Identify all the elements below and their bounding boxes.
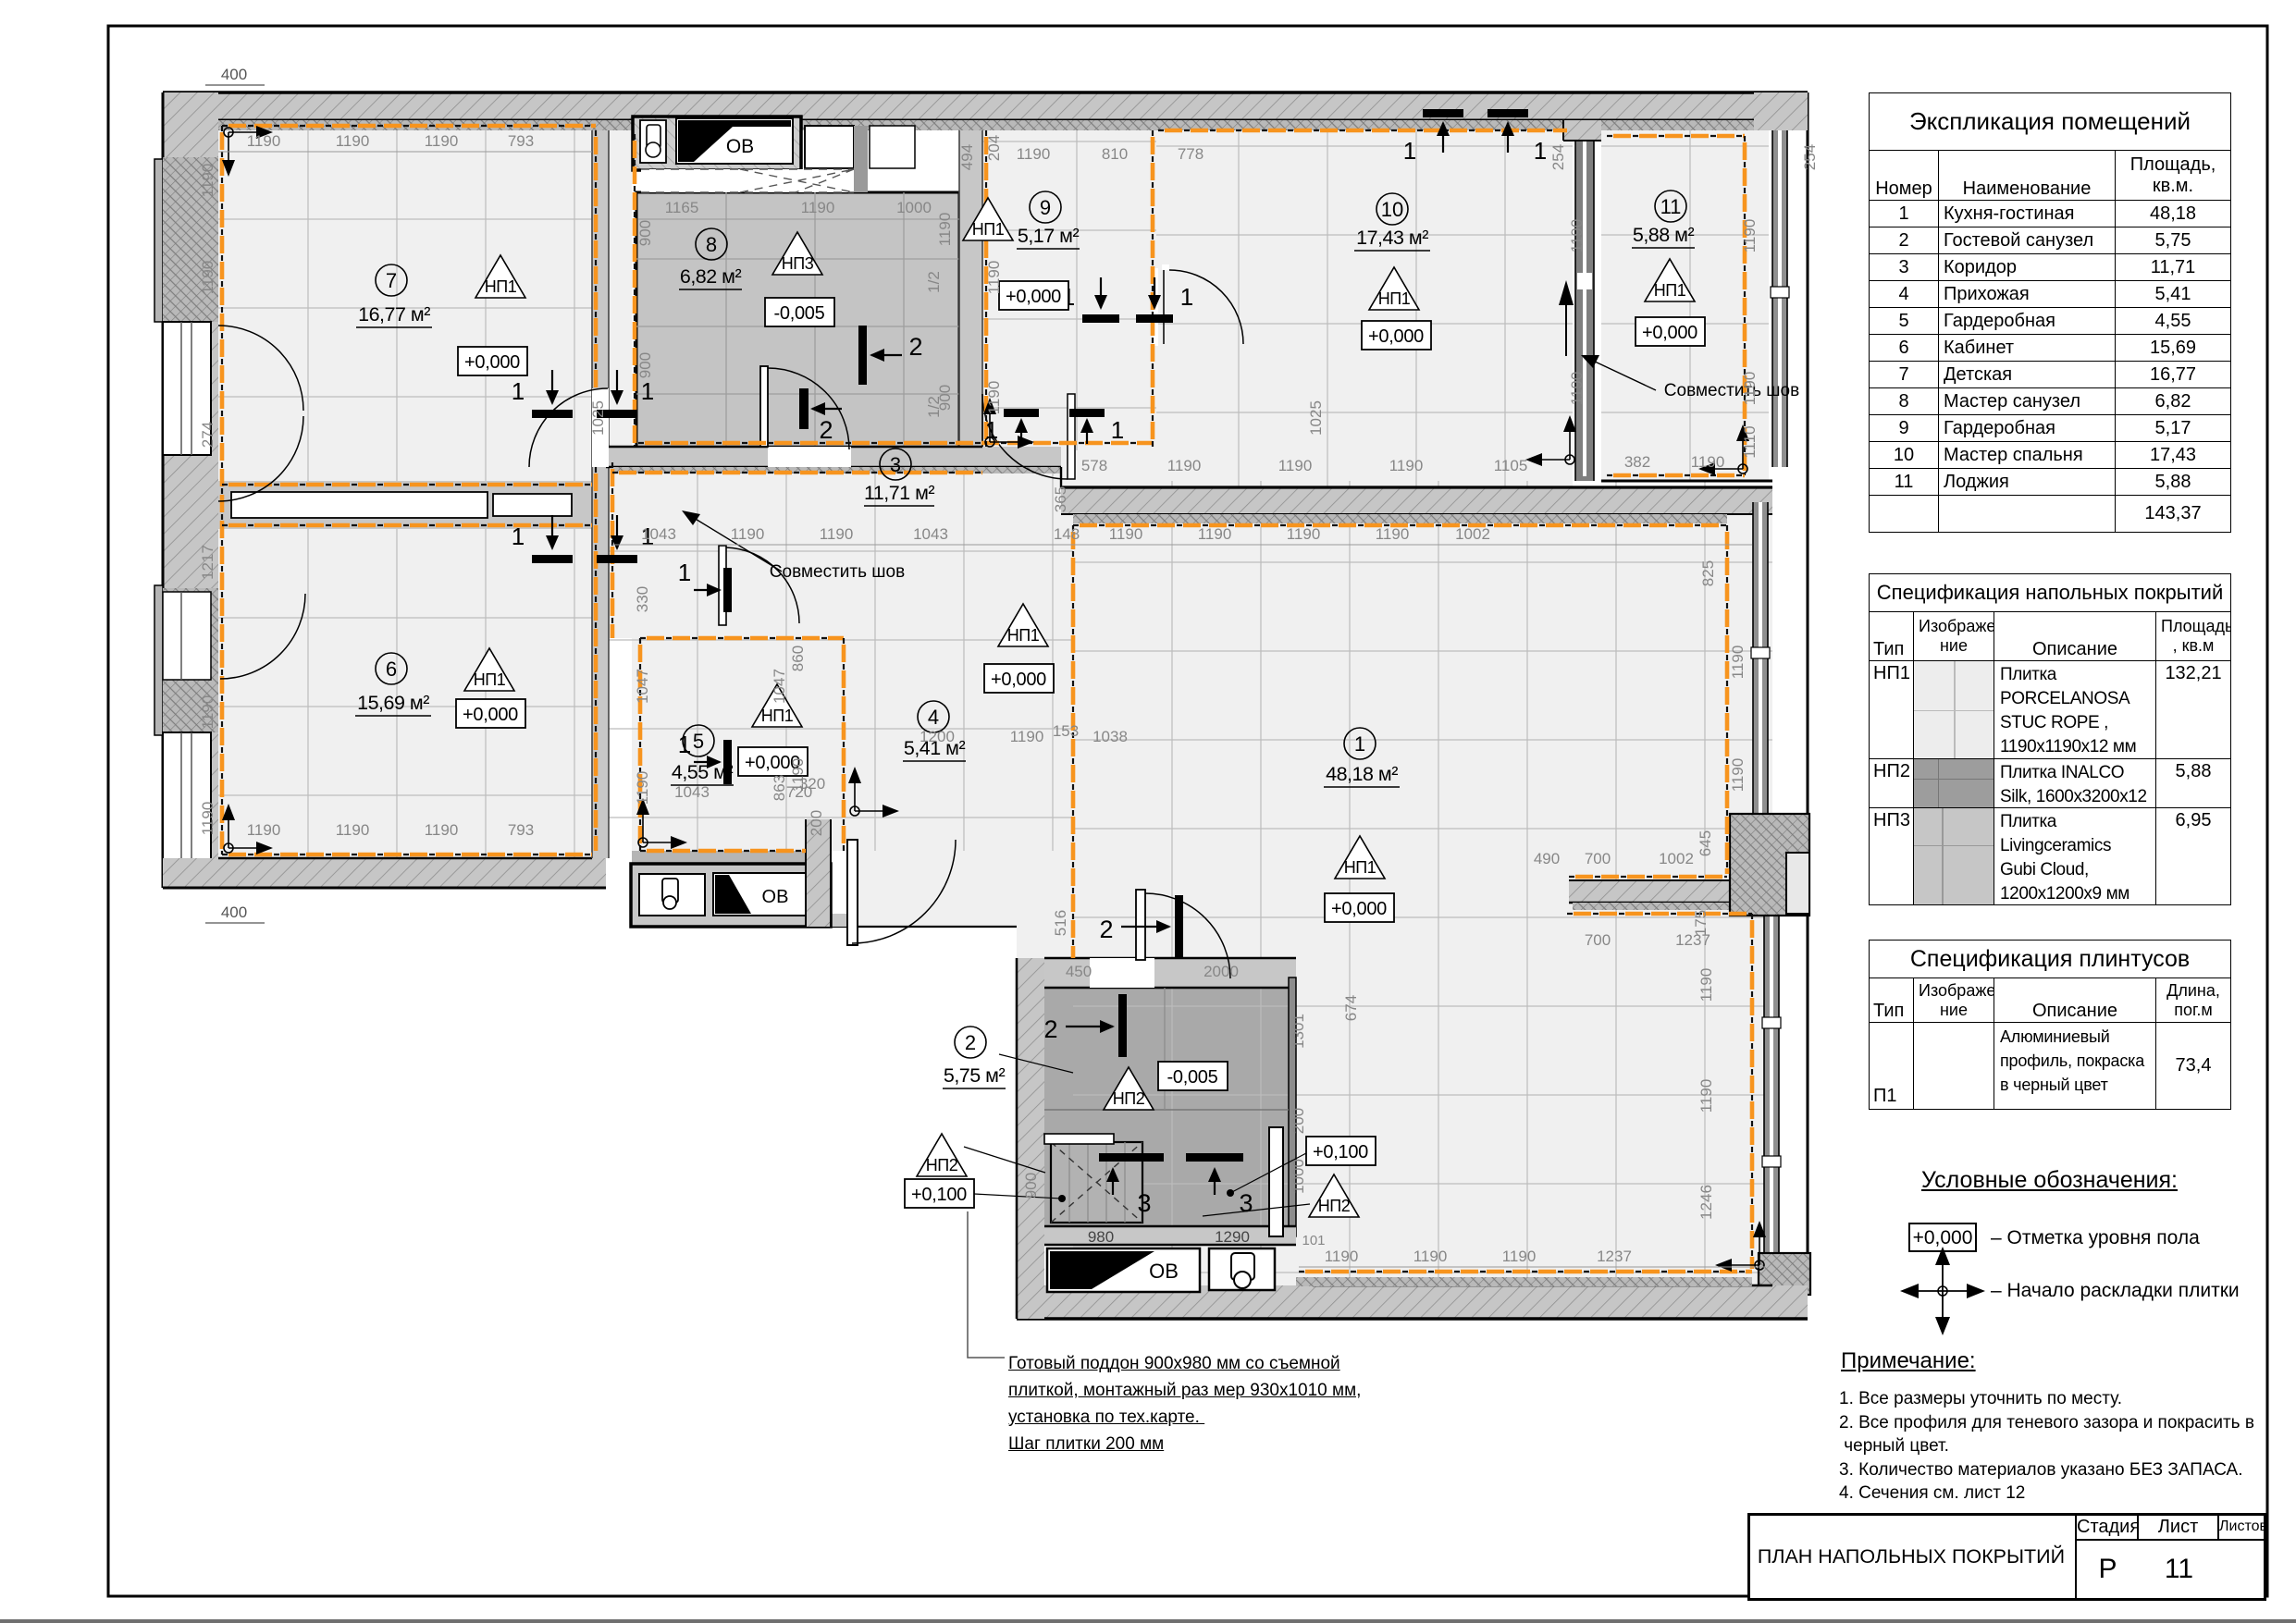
- svg-text:+0,000: +0,000: [1642, 323, 1697, 343]
- svg-text:1043: 1043: [641, 525, 676, 543]
- svg-text:НП1: НП1: [972, 220, 1005, 239]
- svg-text:175: 175: [1692, 910, 1710, 936]
- svg-text:1190: 1190: [1389, 457, 1424, 474]
- svg-text:1190: 1190: [1198, 525, 1232, 543]
- svg-text:1/2: 1/2: [925, 271, 943, 293]
- svg-text:274: 274: [199, 422, 216, 448]
- svg-text:1190: 1190: [1010, 728, 1044, 745]
- svg-text:1190: 1190: [1017, 145, 1051, 163]
- svg-text:1190: 1190: [425, 132, 459, 150]
- svg-text:1190: 1190: [1325, 1248, 1359, 1265]
- svg-text:1000: 1000: [896, 199, 932, 216]
- svg-text:+0,000: +0,000: [991, 670, 1046, 690]
- svg-text:1190: 1190: [199, 802, 216, 836]
- svg-text:148: 148: [1054, 525, 1080, 543]
- svg-text:5,75 м²: 5,75 м²: [944, 1064, 1006, 1087]
- svg-text:ОВ: ОВ: [762, 887, 789, 907]
- svg-text:793: 793: [508, 821, 534, 839]
- svg-text:490: 490: [1534, 850, 1560, 867]
- svg-text:+0,100: +0,100: [1313, 1142, 1368, 1162]
- svg-text:1190: 1190: [1502, 1248, 1537, 1265]
- svg-text:645: 645: [1697, 830, 1714, 856]
- svg-text:НП2: НП2: [1113, 1089, 1145, 1108]
- svg-text:НП1: НП1: [1344, 858, 1376, 877]
- svg-text:11: 11: [1660, 195, 1682, 218]
- svg-text:4: 4: [928, 706, 939, 729]
- svg-text:5,88 м²: 5,88 м²: [1633, 224, 1695, 246]
- svg-text:450: 450: [1066, 963, 1092, 980]
- svg-text:494: 494: [958, 144, 976, 170]
- svg-text:1047: 1047: [771, 669, 788, 704]
- svg-text:15,69 м²: 15,69 м²: [357, 692, 429, 714]
- svg-text:ОВ: ОВ: [1149, 1260, 1179, 1283]
- svg-text:101: 101: [1302, 1233, 1325, 1248]
- svg-text:1190: 1190: [1697, 1079, 1715, 1113]
- svg-text:Совместить шов: Совместить шов: [770, 562, 905, 582]
- svg-text:3: 3: [1239, 1189, 1253, 1217]
- svg-text:1190: 1190: [731, 525, 765, 543]
- svg-text:254: 254: [1549, 144, 1567, 170]
- svg-text:-0,005: -0,005: [774, 303, 825, 324]
- svg-text:254: 254: [1801, 144, 1819, 170]
- svg-text:1190: 1190: [801, 199, 835, 216]
- svg-text:НП1: НП1: [761, 707, 794, 725]
- svg-text:516: 516: [1052, 910, 1069, 936]
- svg-text:1: 1: [1534, 137, 1547, 165]
- svg-text:578: 578: [1081, 457, 1107, 474]
- svg-text:1: 1: [512, 377, 525, 405]
- svg-text:НП1: НП1: [1654, 281, 1686, 300]
- svg-text:10: 10: [1381, 198, 1403, 221]
- svg-text:1110: 1110: [1741, 425, 1759, 458]
- svg-text:5,17 м²: 5,17 м²: [1018, 225, 1080, 247]
- svg-text:1190: 1190: [1167, 457, 1202, 474]
- svg-text:1: 1: [1111, 416, 1124, 444]
- svg-text:3: 3: [1137, 1189, 1151, 1217]
- svg-text:2000: 2000: [1204, 963, 1239, 980]
- svg-text:825: 825: [1699, 560, 1717, 586]
- svg-text:48,18 м²: 48,18 м²: [1326, 763, 1398, 785]
- svg-text:1190: 1190: [1109, 525, 1143, 543]
- svg-text:863: 863: [771, 775, 788, 801]
- svg-text:700: 700: [1585, 931, 1611, 949]
- svg-text:200: 200: [1290, 1108, 1307, 1134]
- svg-text:НП2: НП2: [926, 1156, 958, 1174]
- svg-text:НП1: НП1: [474, 670, 506, 689]
- svg-text:1190: 1190: [985, 261, 1003, 295]
- svg-text:1190: 1190: [199, 261, 216, 295]
- svg-text:1190: 1190: [1568, 219, 1586, 253]
- svg-text:1: 1: [985, 416, 998, 444]
- svg-text:382: 382: [1624, 453, 1650, 471]
- svg-text:1190: 1190: [1376, 525, 1410, 543]
- svg-text:НП1: НП1: [1378, 289, 1411, 308]
- svg-text:1190: 1190: [820, 525, 854, 543]
- svg-text:200: 200: [808, 810, 825, 836]
- svg-text:1190: 1190: [336, 132, 370, 150]
- svg-text:1190: 1190: [1413, 1248, 1448, 1265]
- svg-text:900: 900: [636, 352, 654, 378]
- svg-text:1: 1: [678, 559, 691, 586]
- svg-text:1237: 1237: [1597, 1248, 1632, 1265]
- svg-text:9: 9: [1040, 196, 1051, 219]
- svg-text:-0,005: -0,005: [1167, 1067, 1218, 1088]
- svg-text:1: 1: [1180, 283, 1193, 311]
- svg-text:1165: 1165: [665, 199, 699, 216]
- svg-text:400: 400: [221, 66, 247, 83]
- svg-text:700: 700: [1585, 850, 1611, 867]
- svg-text:1047: 1047: [634, 669, 651, 704]
- svg-text:1: 1: [641, 377, 654, 405]
- svg-text:1190: 1190: [199, 695, 216, 730]
- svg-text:1038: 1038: [1092, 728, 1128, 745]
- svg-text:2: 2: [908, 333, 922, 361]
- svg-text:1002: 1002: [1659, 850, 1694, 867]
- svg-text:793: 793: [508, 132, 534, 150]
- svg-text:1002: 1002: [1455, 525, 1490, 543]
- svg-text:17,43 м²: 17,43 м²: [1356, 227, 1428, 249]
- svg-text:1200: 1200: [920, 728, 955, 745]
- svg-text:+0,000: +0,000: [1368, 326, 1424, 347]
- svg-text:1290: 1290: [1215, 1228, 1250, 1246]
- svg-text:810: 810: [1102, 145, 1128, 163]
- svg-text:204: 204: [985, 135, 1003, 161]
- svg-text:1: 1: [1403, 137, 1416, 165]
- svg-text:1190: 1190: [199, 164, 216, 198]
- svg-text:1190: 1190: [1278, 457, 1313, 474]
- svg-text:1190: 1190: [425, 821, 459, 839]
- svg-text:1190: 1190: [247, 821, 281, 839]
- svg-text:1190: 1190: [336, 821, 370, 839]
- svg-text:1217: 1217: [199, 545, 216, 580]
- svg-text:1190: 1190: [1729, 758, 1747, 793]
- svg-text:1190: 1190: [1741, 372, 1759, 406]
- svg-text:900: 900: [936, 385, 954, 411]
- svg-text:1: 1: [512, 523, 525, 550]
- svg-text:1: 1: [1354, 732, 1365, 756]
- svg-text:1190: 1190: [1568, 372, 1586, 406]
- svg-text:4,55 м²: 4,55 м²: [672, 761, 734, 783]
- svg-text:365: 365: [1052, 486, 1069, 512]
- svg-text:1190: 1190: [1741, 219, 1759, 253]
- svg-text:1190: 1190: [1729, 646, 1747, 680]
- svg-text:778: 778: [1178, 145, 1204, 163]
- svg-text:1105: 1105: [1494, 457, 1528, 474]
- svg-text:2: 2: [965, 1031, 976, 1054]
- svg-text:1043: 1043: [674, 783, 710, 801]
- svg-text:1301: 1301: [1290, 1014, 1307, 1049]
- svg-text:НП3: НП3: [782, 254, 814, 273]
- svg-text:+0,000: +0,000: [464, 352, 520, 373]
- svg-text:900: 900: [636, 220, 654, 246]
- svg-text:+0,000: +0,000: [1331, 899, 1387, 919]
- svg-text:1190: 1190: [1697, 968, 1715, 1002]
- svg-text:1246: 1246: [1697, 1185, 1715, 1220]
- svg-text:1190: 1190: [936, 213, 954, 247]
- svg-text:860: 860: [789, 646, 807, 671]
- svg-text:16,77 м²: 16,77 м²: [358, 303, 430, 326]
- svg-text:8: 8: [706, 233, 717, 256]
- svg-text:Совместить шов: Совместить шов: [1664, 381, 1799, 400]
- svg-text:+0,000: +0,000: [463, 705, 518, 725]
- svg-text:6,82 м²: 6,82 м²: [680, 265, 742, 288]
- svg-text:1190: 1190: [1287, 525, 1321, 543]
- svg-text:НП1: НП1: [1007, 626, 1040, 645]
- svg-text:2: 2: [1043, 1015, 1057, 1043]
- svg-text:ОВ: ОВ: [726, 136, 754, 157]
- svg-text:3: 3: [890, 453, 901, 476]
- svg-text:НП1: НП1: [485, 277, 517, 296]
- svg-text:НП2: НП2: [1318, 1197, 1351, 1215]
- svg-text:2: 2: [1099, 916, 1113, 943]
- svg-text:5: 5: [693, 730, 704, 753]
- svg-text:1190: 1190: [985, 381, 1003, 415]
- svg-text:11,71 м²: 11,71 м²: [864, 482, 934, 504]
- svg-text:1025: 1025: [589, 400, 607, 436]
- svg-text:6: 6: [386, 658, 397, 681]
- svg-text:330: 330: [634, 586, 651, 612]
- svg-text:1043: 1043: [913, 525, 948, 543]
- svg-text:400: 400: [221, 904, 247, 921]
- svg-text:+0,000: +0,000: [1006, 287, 1061, 307]
- svg-text:674: 674: [1342, 995, 1360, 1021]
- svg-text:1190: 1190: [1691, 453, 1725, 471]
- svg-text:1190: 1190: [634, 771, 651, 805]
- svg-text:1190: 1190: [247, 132, 281, 150]
- svg-text:2: 2: [819, 416, 833, 444]
- svg-text:1000: 1000: [1290, 1159, 1307, 1194]
- svg-text:1190: 1190: [789, 758, 807, 793]
- svg-text:153: 153: [1053, 722, 1079, 740]
- svg-text:1025: 1025: [1307, 400, 1325, 436]
- svg-text:7: 7: [386, 269, 397, 292]
